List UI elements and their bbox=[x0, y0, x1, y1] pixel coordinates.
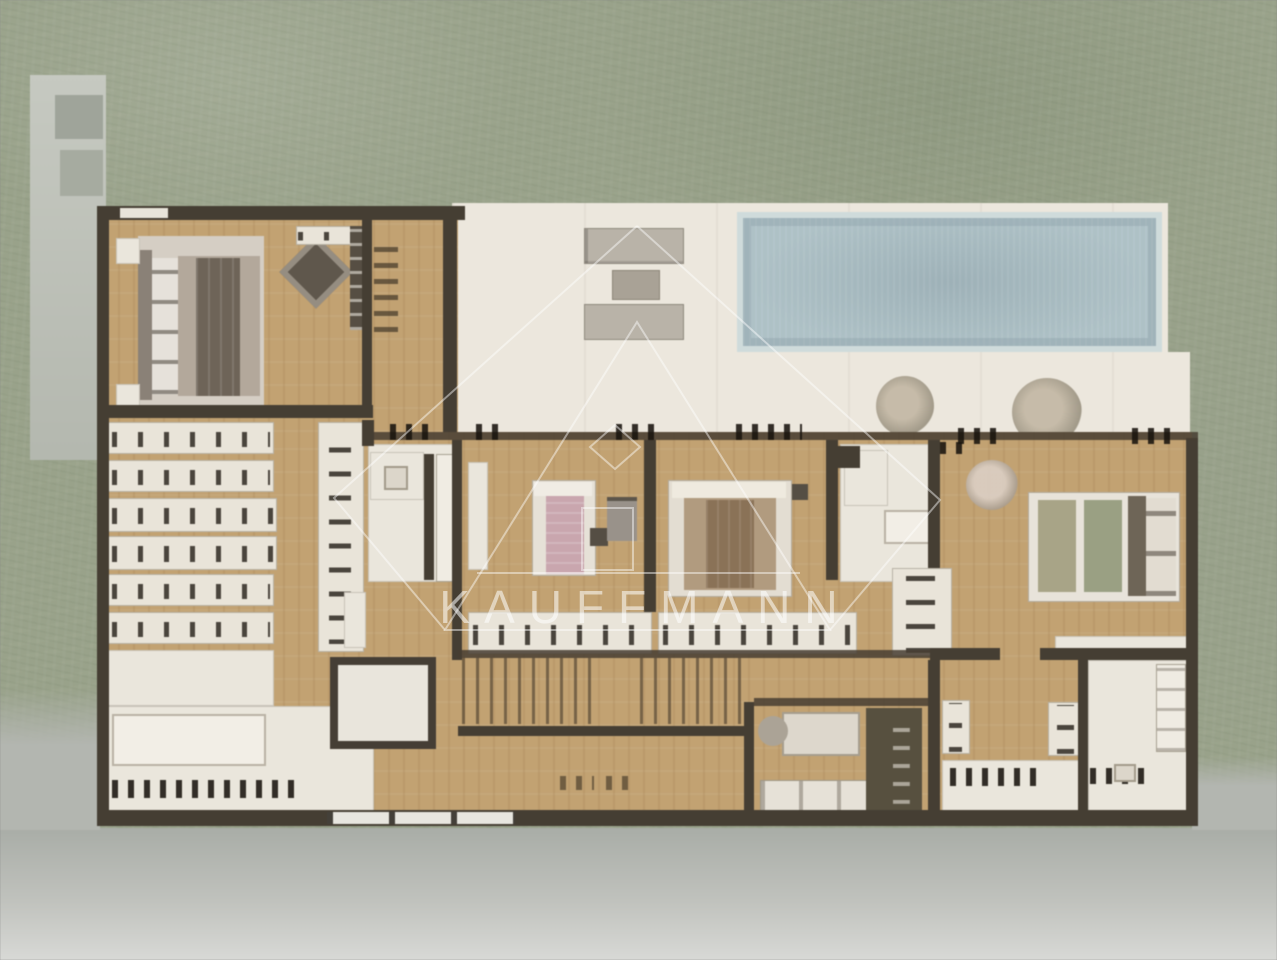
floor-plan-image: KAUFFMANN bbox=[0, 0, 1277, 960]
watermark-text: KAUFFMANN bbox=[425, 580, 851, 634]
watermark-logo bbox=[0, 0, 1277, 960]
